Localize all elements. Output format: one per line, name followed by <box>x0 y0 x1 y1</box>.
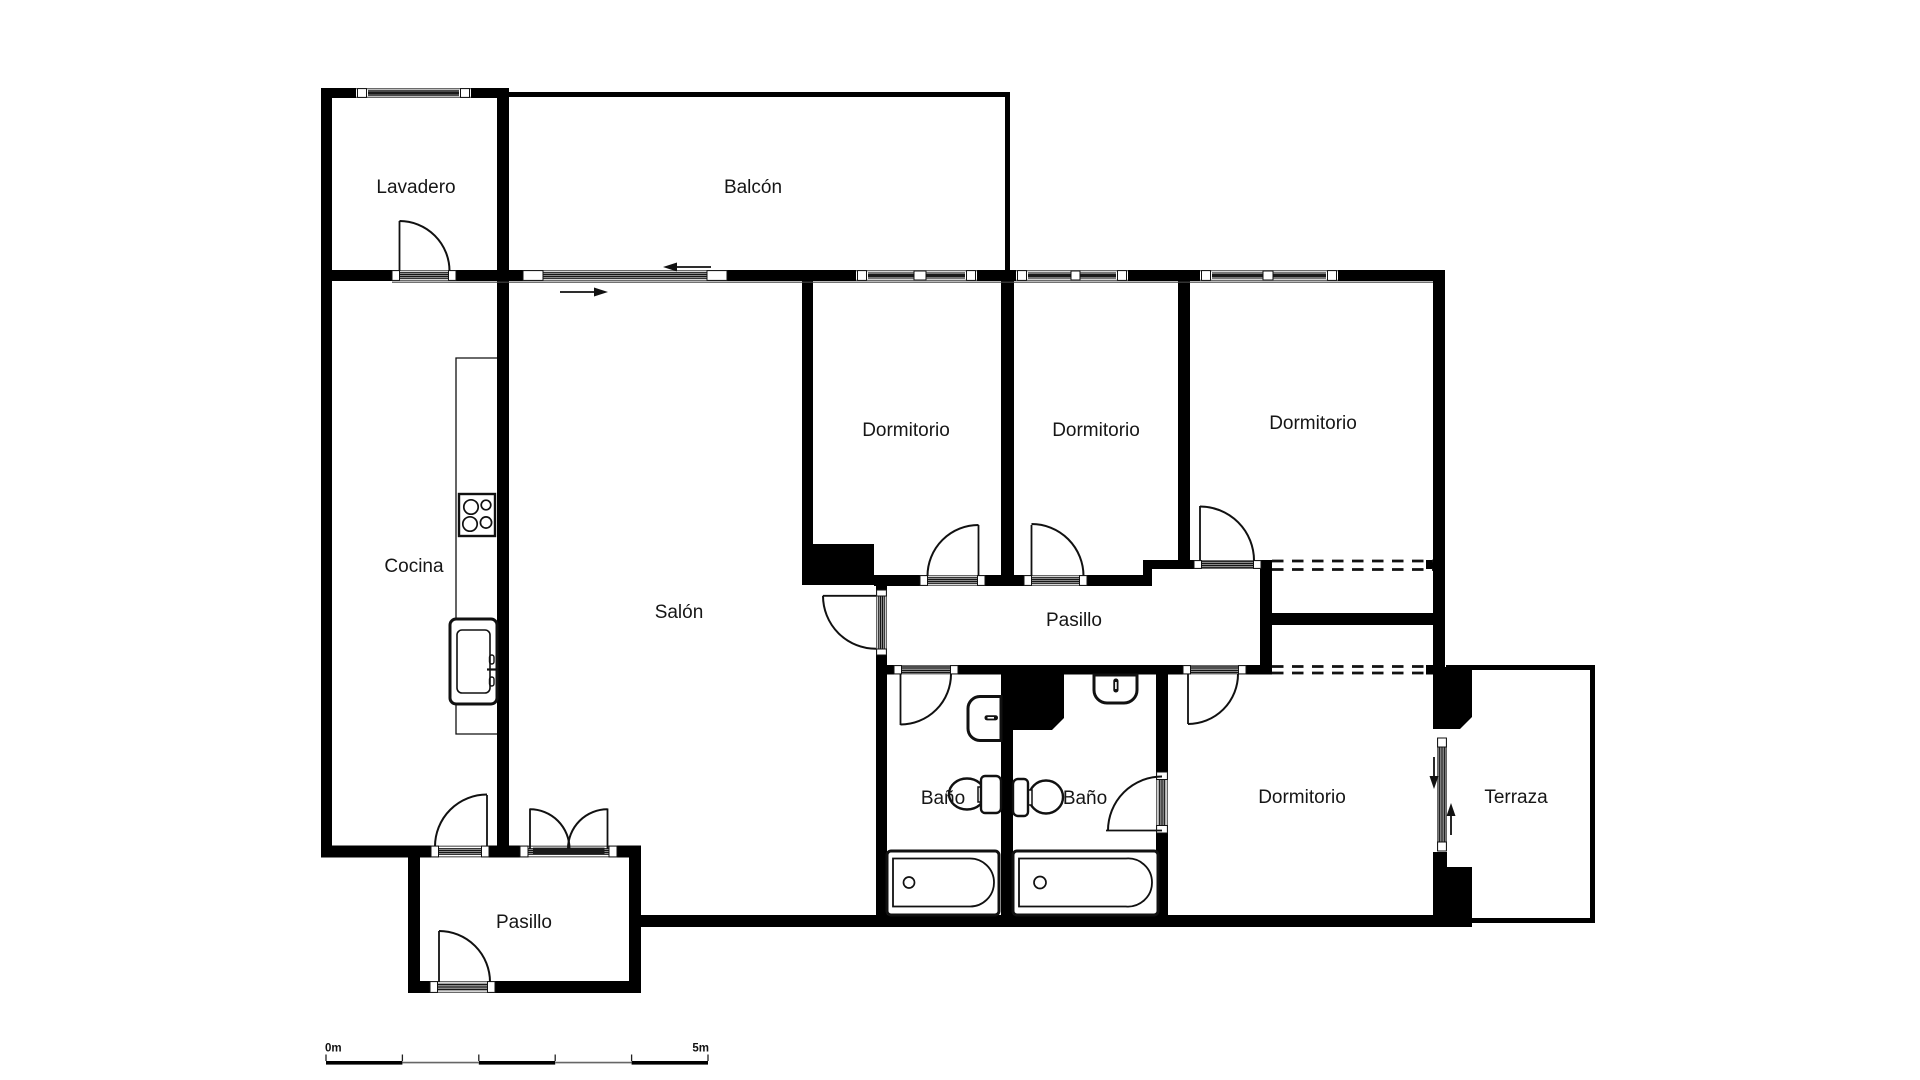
svg-text:0m: 0m <box>325 1043 342 1055</box>
svg-text:Dormitorio: Dormitorio <box>862 420 950 441</box>
svg-text:Cocina: Cocina <box>384 556 444 577</box>
svg-text:Pasillo: Pasillo <box>1046 610 1102 631</box>
svg-text:Pasillo: Pasillo <box>496 912 552 933</box>
svg-text:Balcón: Balcón <box>724 177 782 198</box>
svg-text:Baño: Baño <box>1063 788 1107 809</box>
svg-text:Lavadero: Lavadero <box>376 177 455 198</box>
svg-text:Baño: Baño <box>921 788 965 809</box>
svg-text:Dormitorio: Dormitorio <box>1258 787 1346 808</box>
svg-text:Terraza: Terraza <box>1484 787 1548 808</box>
svg-text:Dormitorio: Dormitorio <box>1269 413 1357 434</box>
svg-text:5m: 5m <box>692 1043 709 1055</box>
svg-text:Salón: Salón <box>655 602 704 623</box>
svg-text:Dormitorio: Dormitorio <box>1052 420 1140 441</box>
